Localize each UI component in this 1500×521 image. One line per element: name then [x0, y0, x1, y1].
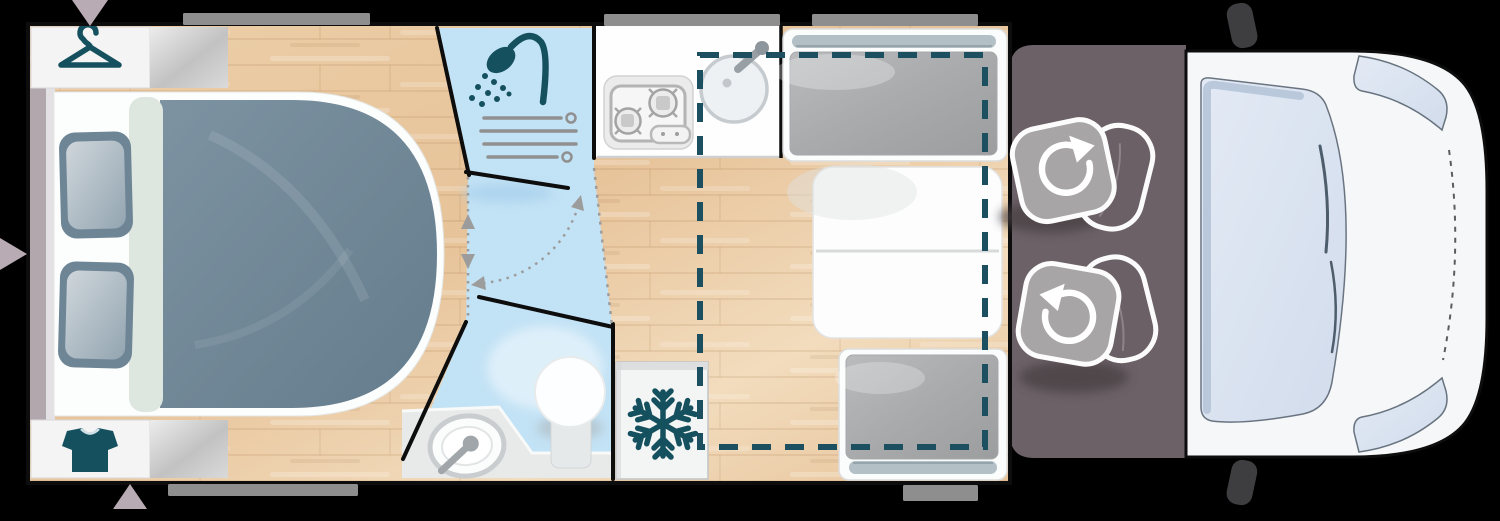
- windshield: [1201, 78, 1346, 422]
- swivel-seat-top: [999, 115, 1159, 236]
- sheet-fold: [129, 97, 163, 412]
- cabinet-bottom: [150, 420, 228, 478]
- cab-floor: [1010, 45, 1186, 458]
- pillow: [58, 261, 135, 369]
- duvet: [160, 100, 437, 408]
- entry-step: [903, 485, 978, 501]
- side-mirror-top-icon: [1225, 1, 1260, 50]
- window-bar: [812, 14, 978, 26]
- kitchen: [596, 26, 781, 158]
- floorplan-stage: [0, 0, 1500, 521]
- island-bed: [54, 92, 444, 416]
- window-bar: [168, 484, 358, 496]
- window-bar: [604, 14, 780, 26]
- headboard-strip: [30, 88, 46, 420]
- cab-front: [1010, 1, 1487, 507]
- floorplan-canvas: [0, 0, 1500, 521]
- wardrobe-hanging: [31, 27, 150, 88]
- hob-burners-icon: [604, 76, 693, 149]
- cabinet-top: [150, 27, 228, 88]
- pillow: [59, 131, 134, 239]
- shower-splash-shade: [463, 184, 553, 202]
- side-mirror-bottom-icon: [1225, 458, 1260, 507]
- vent-triangle-icon: [0, 238, 27, 270]
- vent-triangle-icon: [113, 484, 147, 509]
- dinette-rear-bench: [835, 349, 1007, 480]
- dinette-table: [787, 164, 1002, 338]
- dinette-front-bench: [775, 29, 1007, 161]
- window-bar: [183, 13, 370, 25]
- refrigerator: [616, 362, 708, 479]
